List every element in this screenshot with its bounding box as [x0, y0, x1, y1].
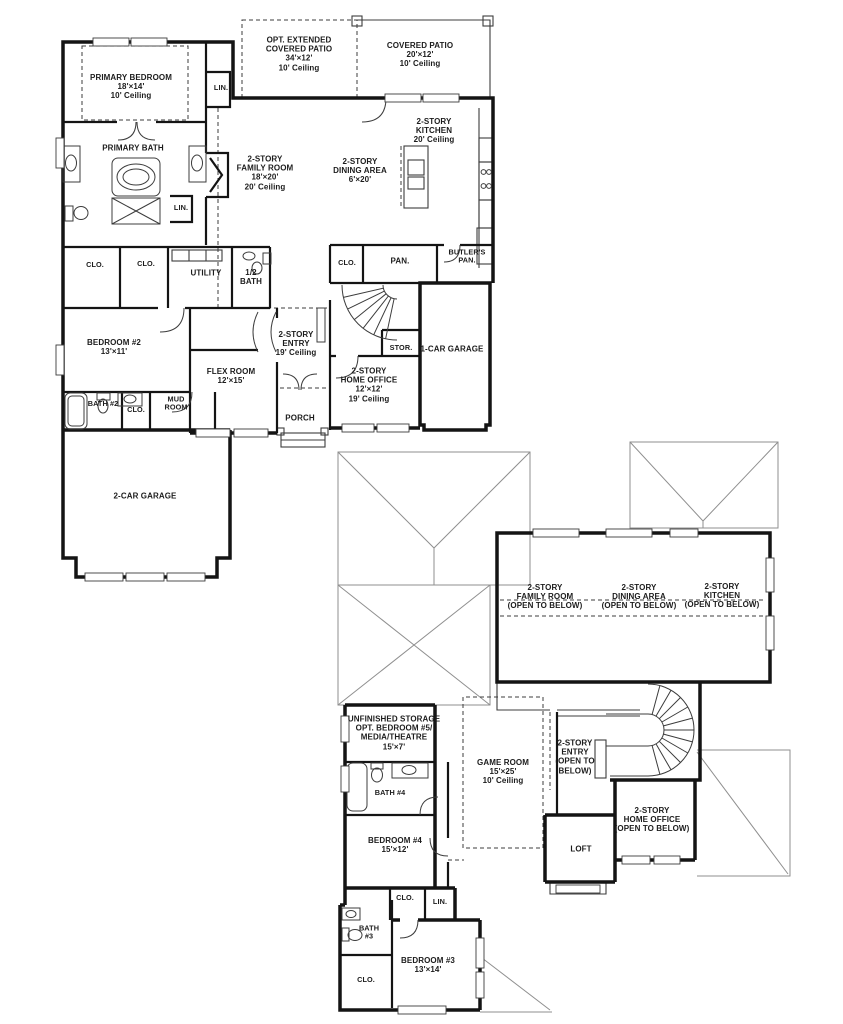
label-line: BELOW) — [555, 766, 594, 775]
label-line: 13'×11' — [87, 347, 141, 356]
label-line: CLO. — [357, 976, 375, 984]
label-line: CLO. — [338, 259, 356, 267]
floorplan-drawing — [0, 0, 843, 1024]
label-line: 2-STORY — [414, 117, 455, 126]
label-kitchen: 2-STORYKITCHEN20' Ceiling — [414, 117, 455, 145]
door-arcs — [118, 98, 460, 938]
label-butlers-pantry: BUTLER'SPAN. — [449, 249, 486, 266]
label-entry-open-below: 2-STORYENTRY(OPEN TOBELOW) — [555, 739, 594, 776]
label-closet-2: CLO. — [137, 260, 155, 268]
label-line: 2-CAR GARAGE — [114, 491, 177, 500]
label-bath-4: BATH #4 — [375, 789, 406, 797]
label-line: 1/2 — [240, 268, 262, 277]
label-line: BATH #2 — [88, 400, 119, 408]
label-line: FAMILY ROOM — [508, 592, 583, 601]
label-line: PRIMARY BATH — [102, 143, 164, 152]
label-line: 20'×12' — [387, 50, 453, 59]
label-closet-1: CLO. — [86, 261, 104, 269]
label-line: KITCHEN — [414, 126, 455, 135]
label-dining-area-open-below: 2-STORYDINING AREA(OPEN TO BELOW) — [602, 583, 677, 611]
label-line: 2-STORY — [276, 330, 317, 339]
label-closet-3: CLO. — [338, 259, 356, 267]
label-primary-bedroom: PRIMARY BEDROOM18'×14'10' Ceiling — [90, 73, 172, 101]
label-line: 2-STORY — [237, 155, 294, 164]
label-line: (OPEN TO BELOW) — [615, 825, 690, 834]
label-line: 18'×14' — [90, 82, 172, 91]
label-line: 15'×7' — [348, 742, 440, 751]
label-line: 2-STORY — [341, 367, 398, 376]
label-flex-room: FLEX ROOM12'×15' — [207, 367, 255, 385]
label-line: #3 — [359, 933, 379, 941]
label-line: PORCH — [285, 413, 314, 422]
label-line: PAN. — [391, 256, 410, 265]
label-line: FLEX ROOM — [207, 367, 255, 376]
label-line: COVERED PATIO — [387, 41, 453, 50]
label-line: 10' Ceiling — [90, 92, 172, 101]
floorplan-page: PRIMARY BEDROOM18'×14'10' Ceiling OPT. E… — [0, 0, 843, 1024]
label-line: 2-STORY — [508, 583, 583, 592]
label-line: 2-STORY — [602, 583, 677, 592]
label-line: COVERED PATIO — [266, 45, 332, 54]
label-dining-area: 2-STORYDINING AREA6'×20' — [333, 157, 387, 185]
label-line: 10' Ceiling — [387, 60, 453, 69]
label-porch: PORCH — [285, 413, 314, 422]
label-line: 2-STORY — [685, 582, 760, 591]
label-closet-6: CLO. — [357, 976, 375, 984]
label-bath-2: BATH #2 — [88, 400, 119, 408]
label-line: LIN. — [174, 204, 188, 212]
label-line: FAMILY ROOM — [237, 164, 294, 173]
label-line: ROOM — [164, 404, 187, 412]
label-line: 1-CAR GARAGE — [421, 344, 484, 353]
fixtures — [63, 146, 491, 941]
label-home-office-open-below: 2-STORYHOME OFFICE(OPEN TO BELOW) — [615, 806, 690, 834]
label-line: 2-STORY — [555, 739, 594, 748]
label-covered-patio: COVERED PATIO20'×12'10' Ceiling — [387, 41, 453, 69]
windows — [56, 38, 774, 1014]
label-unfinished-storage: UNFINISHED STORAGEOPT. BEDROOM #5/MEDIA/… — [348, 715, 440, 752]
label-line: PRIMARY BEDROOM — [90, 73, 172, 82]
label-mud-room: MUDROOM — [164, 396, 187, 413]
label-linen-hall: LIN. — [214, 84, 228, 92]
label-line: LIN. — [433, 898, 447, 906]
label-line: MEDIA/THEATRE — [348, 733, 440, 742]
label-line: 19' Ceiling — [341, 394, 398, 403]
label-line: 10' Ceiling — [266, 63, 332, 72]
label-line: PAN. — [449, 257, 486, 265]
label-line: BEDROOM #2 — [87, 338, 141, 347]
label-storage-under-stairs: STOR. — [390, 344, 413, 352]
label-loft: LOFT — [570, 844, 591, 853]
label-linen-2: LIN. — [433, 898, 447, 906]
label-bedroom-3: BEDROOM #313'×14' — [401, 956, 455, 974]
label-line: 2-STORY — [333, 157, 387, 166]
label-line: CLO. — [127, 406, 145, 414]
label-utility: UTILITY — [191, 268, 222, 277]
label-line: UTILITY — [191, 268, 222, 277]
label-linen-bath: LIN. — [174, 204, 188, 212]
label-home-office: 2-STORYHOME OFFICE12'×12'19' Ceiling — [341, 367, 398, 404]
label-game-room: GAME ROOM15'×25'10' Ceiling — [477, 758, 529, 786]
label-line: DINING AREA — [602, 592, 677, 601]
label-entry: 2-STORYENTRY19' Ceiling — [276, 330, 317, 358]
label-line: (OPEN TO — [555, 757, 594, 766]
label-bath-3: BATH#3 — [359, 925, 379, 942]
label-opt-extended-covered-patio: OPT. EXTENDEDCOVERED PATIO34'×12'10' Cei… — [266, 36, 332, 73]
label-line: 2-STORY — [615, 806, 690, 815]
label-line: BEDROOM #4 — [368, 836, 422, 845]
label-line: OPT. EXTENDED — [266, 36, 332, 45]
label-line: 6'×20' — [333, 176, 387, 185]
label-family-room: 2-STORYFAMILY ROOM18'×20'20' Ceiling — [237, 155, 294, 192]
label-line: 12'×12' — [341, 385, 398, 394]
label-kitchen-open-below: 2-STORYKITCHEN(OPEN TO BELOW) — [685, 582, 760, 610]
label-line: BATH #4 — [375, 789, 406, 797]
label-line: STOR. — [390, 344, 413, 352]
label-line: 19' Ceiling — [276, 349, 317, 358]
label-line: LOFT — [570, 844, 591, 853]
label-closet-4: CLO. — [127, 406, 145, 414]
label-line: KITCHEN — [685, 591, 760, 600]
label-line: CLO. — [396, 894, 414, 902]
label-line: 15'×12' — [368, 845, 422, 854]
label-family-room-open-below: 2-STORYFAMILY ROOM(OPEN TO BELOW) — [508, 583, 583, 611]
label-line: 20' Ceiling — [237, 182, 294, 191]
label-bedroom-4: BEDROOM #415'×12' — [368, 836, 422, 854]
label-two-car-garage: 2-CAR GARAGE — [114, 491, 177, 500]
label-line: 13'×14' — [401, 965, 455, 974]
label-line: CLO. — [137, 260, 155, 268]
label-line: BEDROOM #3 — [401, 956, 455, 965]
label-pantry: PAN. — [391, 256, 410, 265]
label-line: GAME ROOM — [477, 758, 529, 767]
label-bedroom-2: BEDROOM #213'×11' — [87, 338, 141, 356]
label-line: ENTRY — [555, 748, 594, 757]
label-line: (OPEN TO BELOW) — [508, 602, 583, 611]
label-line: 20' Ceiling — [414, 136, 455, 145]
label-closet-5: CLO. — [396, 894, 414, 902]
label-line: (OPEN TO BELOW) — [685, 601, 760, 610]
label-line: LIN. — [214, 84, 228, 92]
staircase-second-floor — [606, 684, 694, 776]
label-line: 34'×12' — [266, 54, 332, 63]
label-line: 10' Ceiling — [477, 777, 529, 786]
label-line: OPT. BEDROOM #5/ — [348, 724, 440, 733]
label-line: 15'×25' — [477, 767, 529, 776]
label-line: HOME OFFICE — [341, 376, 398, 385]
label-line: (OPEN TO BELOW) — [602, 602, 677, 611]
label-line: DINING AREA — [333, 166, 387, 175]
label-line: 12'×15' — [207, 376, 255, 385]
label-line: ENTRY — [276, 339, 317, 348]
label-line: HOME OFFICE — [615, 815, 690, 824]
label-line: BATH — [240, 277, 262, 286]
label-line: CLO. — [86, 261, 104, 269]
label-primary-bath: PRIMARY BATH — [102, 143, 164, 152]
label-half-bath: 1/2BATH — [240, 268, 262, 286]
label-line: UNFINISHED STORAGE — [348, 715, 440, 724]
label-one-car-garage: 1-CAR GARAGE — [421, 344, 484, 353]
label-line: 18'×20' — [237, 173, 294, 182]
